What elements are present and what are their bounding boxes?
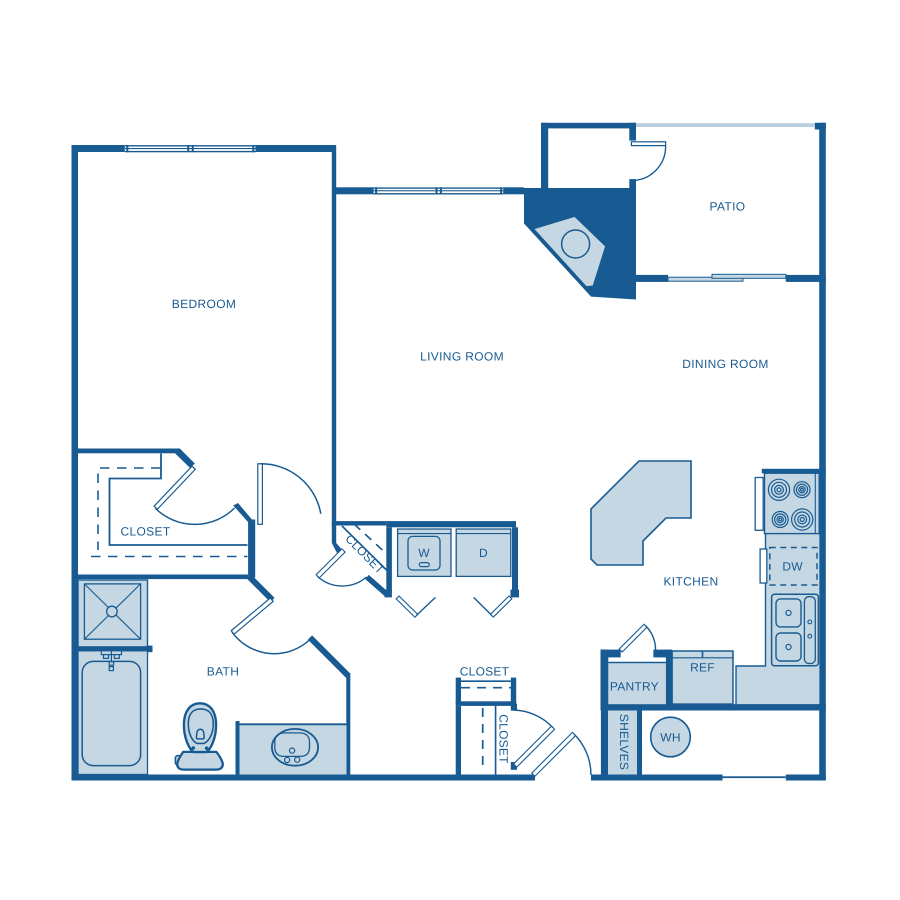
svg-text:WH: WH xyxy=(660,730,681,744)
svg-text:BEDROOM: BEDROOM xyxy=(172,297,236,311)
svg-text:CLOSET: CLOSET xyxy=(343,532,388,577)
svg-text:PANTRY: PANTRY xyxy=(610,680,659,694)
svg-text:DINING ROOM: DINING ROOM xyxy=(682,357,769,371)
svg-text:LIVING ROOM: LIVING ROOM xyxy=(420,350,504,364)
svg-text:D: D xyxy=(479,546,488,560)
svg-text:KITCHEN: KITCHEN xyxy=(663,575,718,589)
svg-text:CLOSET: CLOSET xyxy=(120,525,170,539)
svg-text:W: W xyxy=(418,546,430,560)
svg-text:CLOSET: CLOSET xyxy=(460,665,510,679)
svg-text:REF: REF xyxy=(690,660,715,674)
svg-text:PATIO: PATIO xyxy=(710,200,746,214)
svg-text:BATH: BATH xyxy=(207,665,240,679)
svg-text:CLOSET: CLOSET xyxy=(497,714,511,764)
svg-text:DW: DW xyxy=(782,560,803,574)
svg-text:SHELVES: SHELVES xyxy=(617,714,631,770)
